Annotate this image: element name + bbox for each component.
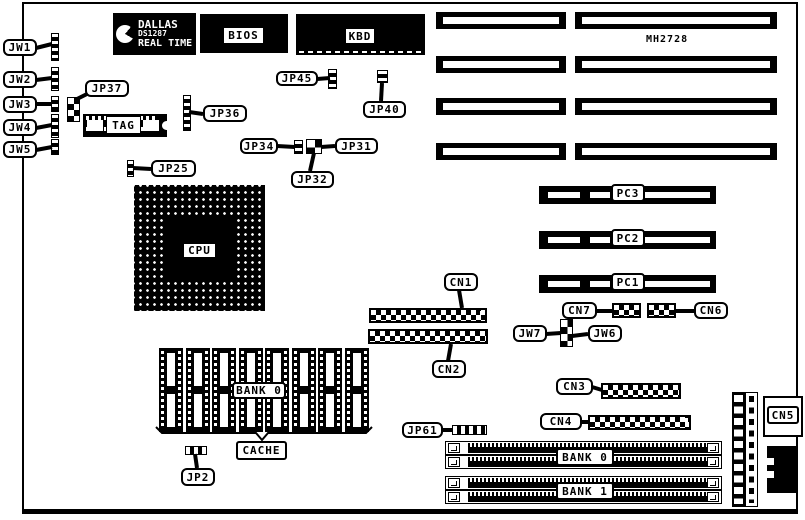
jp31-callout: JP31 [335,138,378,154]
jw6-callout: JW6 [588,325,622,342]
jp45-callout: JP45 [276,71,318,86]
simm-bank1-label: BANK 1 [556,482,614,500]
jp25-callout: JP25 [151,160,196,177]
kbd-label: KBD [345,28,375,44]
pc3-label: PC3 [611,184,645,202]
cn5-callout: CN5 [767,406,799,424]
cn4-callout: CN4 [540,413,582,430]
jp37-callout: JP37 [85,80,129,97]
bios-label: BIOS [223,27,264,44]
pc2-label: PC2 [611,229,645,247]
cache-bank-label: BANK 0 [232,382,286,399]
cpu-label: CPU [183,243,216,258]
pc1-label: PC1 [611,273,645,291]
cn6-callout: CN6 [694,302,728,319]
motherboard-diagram: DALLAS DS1287 REAL TIME BIOS KBD MH2728 … [0,0,805,520]
jp61-callout: JP61 [402,422,443,438]
tag-label: TAG [106,116,141,134]
cache-brace [156,427,372,440]
cn1-callout: CN1 [444,273,478,291]
jp40-callout: JP40 [363,101,406,118]
simm-bank0-label: BANK 0 [556,448,614,466]
jw4-callout: JW4 [3,119,37,136]
jp34-callout: JP34 [240,138,278,154]
cn3-callout: CN3 [556,378,593,395]
jw5-callout: JW5 [3,141,37,158]
jw3-callout: JW3 [3,96,37,113]
jp36-callout: JP36 [203,105,247,122]
jp32-callout: JP32 [291,171,334,188]
cn2-callout: CN2 [432,360,466,378]
callout-tails [0,0,805,520]
cache-callout: CACHE [236,441,287,460]
jw2-callout: JW2 [3,71,37,88]
cn7-callout: CN7 [562,302,597,319]
jw1-callout: JW1 [3,39,37,56]
jw7-callout: JW7 [513,325,547,342]
jp2-callout: JP2 [181,468,215,486]
